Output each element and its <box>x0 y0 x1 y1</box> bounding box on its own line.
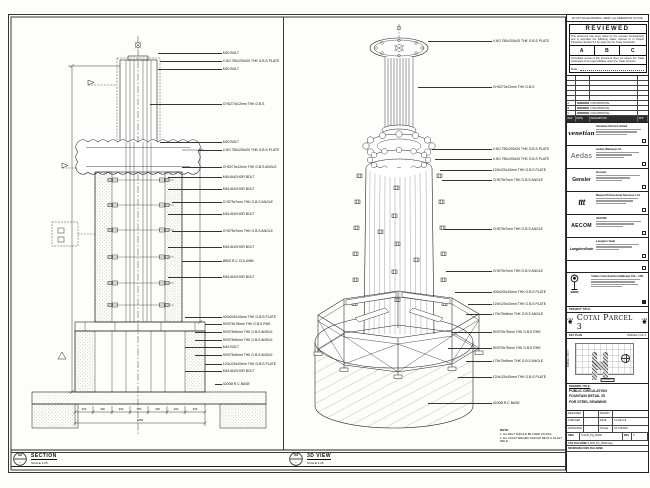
dim-value: 300 <box>119 408 124 411</box>
threed-bubble-ref: - <box>295 460 296 464</box>
company-checkbox <box>642 185 646 189</box>
stamp-status-options: A B C <box>570 45 646 56</box>
stamp-date-label: Date : <box>571 67 579 71</box>
company-checkbox <box>642 162 646 166</box>
drawing-title-label: DRAWING TITLE: <box>569 385 646 388</box>
contractor-block: Yudao Construction (Macau) CO., LTD. <box>567 273 648 307</box>
reference-row: REFERENCE DWG FILE NAME <box>567 446 648 452</box>
threed-bubble-number: 03 <box>294 453 298 457</box>
venetian-logo: venetian <box>568 131 594 137</box>
callout: CHS273x12mm THK G.B.S <box>418 86 534 89</box>
callout: SHS75x5mm THK G.B.S ANGLE <box>195 331 273 334</box>
banner-ornament-right-icon: ❦ <box>641 318 648 326</box>
company-name: Gensler <box>596 171 647 174</box>
key-plan-tag: PARCEL 3 <box>600 378 615 382</box>
key-plan-building-link <box>597 362 603 370</box>
company-name: Langdon Seah <box>596 240 647 243</box>
status-option-c: C <box>620 46 645 55</box>
key-plan: PARCEL 1 OF 3 PARCEL 3 <box>567 339 648 384</box>
drawing-number: S-SUB_PQ_00000 <box>580 433 623 440</box>
drawing-sheet: M20 BOLT 4 NO 750x200x20 THK G.B.S PLATE… <box>0 0 650 488</box>
section-view-title: SECTION <box>31 453 57 461</box>
dim-value: 450 <box>137 408 142 411</box>
callout: CHS75x7mm THK G.B.S ANGLE <box>446 270 543 273</box>
callout: 4 NO 750x200x20 THK G.B.S PLATE <box>435 158 549 161</box>
key-plan-side-label: PARCEL 1 OF 3 <box>568 350 570 367</box>
cad-file-name: S-SUB_PQ_00000.dwg <box>587 442 612 445</box>
company-row-empty <box>567 261 648 273</box>
note-line: 2. ALL FILLET WELDED SHOULD BE 6mm FILLE… <box>500 437 562 444</box>
callout: SHS75x75mm THK G.B.S RHS <box>205 323 270 326</box>
callout: 4 NO 750x200x20 THK G.B.S PLATE <box>198 149 279 152</box>
company-checkbox <box>642 266 646 270</box>
section-bubble-ref: - <box>19 460 20 464</box>
callout: 4 NO 750x200x20 THK G.B.S PLATE <box>428 40 549 43</box>
callout: M16 ANCHOR BOLT <box>185 370 254 373</box>
company-checkbox <box>642 254 646 258</box>
drawing-title-line: FOR STEEL DRAWING <box>569 400 646 405</box>
callout: M20 BOLT <box>158 52 239 55</box>
stamp-title: REVIEWED <box>570 25 646 34</box>
drawing-title-block: DRAWING TITLE: PUBLIC CIRCULATION FOUNTA… <box>567 384 648 411</box>
callout: 4 NO 750x200x20 THK G.B.S PLATE <box>432 148 549 151</box>
key-plan-grid <box>575 343 634 375</box>
drawing-number-row: DWG NO S-SUB_PQ_00000 REV C <box>567 433 648 441</box>
callout: M16 ANCHOR BOLT <box>168 276 254 279</box>
section-bubble-number: 02 <box>18 453 22 457</box>
company-checkbox <box>642 139 646 143</box>
section-linework <box>32 36 266 436</box>
aedas-logo: Aedas <box>571 153 592 160</box>
detail-bubbles <box>14 453 303 466</box>
company-name: Macau Professional Services Ltd. <box>596 194 647 197</box>
callout: CHS75x7mm THK G.B.S ANGLE <box>172 230 273 233</box>
aecom-logo: AECOM <box>571 223 592 229</box>
title-block: DO NOT SCALE DRAWING. VERIFY ALL DIMENSI… <box>566 14 649 473</box>
dim-value: 300 <box>193 408 198 411</box>
callout: SHS75x5mm THK G.B.S ANGLE <box>195 339 273 342</box>
callout: M20 BOLT <box>158 68 239 71</box>
notes-heading: NOTE: <box>500 428 509 432</box>
callout: 4200Ø R.C BASE <box>215 383 250 386</box>
revision-table: A FOR APPROVAL B FOR APPROVAL C FOR APPR… <box>567 76 648 123</box>
callout: M16 ANCHOR BOLT <box>168 176 254 179</box>
threed-view-scale: SCALE 1:25 <box>307 461 324 465</box>
stamp-date-row: Date : <box>570 64 646 72</box>
section-view-scale: SCALE 1:25 <box>31 461 48 465</box>
dim-value: 300 <box>155 408 160 411</box>
company-row-macau-professional: ttt Macau Professional Services Ltd. <box>567 192 648 215</box>
callout: L75x75x6mm THK G.B.S ANGLE <box>466 360 543 363</box>
company-row-langdon-seah: LangdonSeah Langdon Seah <box>567 238 648 261</box>
meta-row-checked: CHECKED- DATE14-JUN-19 <box>567 418 648 426</box>
callout: CHS75x7mm THK G.B.S ANGLE <box>442 179 543 182</box>
contractor-mark <box>642 300 646 304</box>
key-plan-label: KEY PLAN <box>567 334 627 337</box>
callout: M20 BOLT <box>160 141 239 144</box>
revision-value: C <box>632 433 648 440</box>
callout: SHS75x5mm THK G.B.S ANGLE <box>195 354 273 357</box>
contractor-logo-icon <box>567 273 582 295</box>
callout: 400x200x10mm THK G.B.S PLATE <box>185 316 276 319</box>
callout: 120x120x10mm THK G.B.S PLATE <box>468 303 546 306</box>
dim-value: 400 <box>174 408 179 411</box>
banner-ornament-left-icon: ❦ <box>567 318 574 326</box>
callout: 4 NO 750x200x20 THK G.B.S PLATE <box>160 60 279 63</box>
callout: SHS75x75mm THK G.B.S RHS <box>448 347 540 350</box>
company-row-aedas: Aedas Aedas (Macau) Ltd. <box>567 146 648 169</box>
callout: 120x120x10mm THK G.B.S PLATE <box>205 363 276 366</box>
note-line: 1. ALL BOLT SHOULD BE FIXED ON SITE. <box>500 433 552 436</box>
callout: M16 ANCHOR BOLT <box>168 213 254 216</box>
callout: SHS75x75mm THK G.B.S RHS <box>452 331 540 334</box>
status-option-a: A <box>570 46 595 55</box>
stamp-body: This document has been noted by the rele… <box>570 34 646 46</box>
contractor-name: Yudao Construction (Macau) CO., LTD. <box>591 275 647 278</box>
dim-total: 2450 <box>137 419 143 422</box>
callout: CHS273x12mm THK G.B.S <box>150 103 264 106</box>
key-plan-parcel-label: PARCEL 3 OF 3 <box>627 334 648 337</box>
company-name: AECOM <box>596 217 647 220</box>
callout: 120x120x10mm THK G.B.S PLATE <box>458 376 546 379</box>
cad-linework <box>0 0 650 488</box>
review-stamp: REVIEWED This document has been noted by… <box>567 22 648 76</box>
company-checkbox <box>642 208 646 212</box>
drawing-title-line: FOUNTAIN DETAIL 25 <box>569 394 646 399</box>
callout: L75x75x6mm THK G.B.S ANGLE <box>466 313 543 316</box>
ttt-logo: ttt <box>578 198 585 207</box>
meta-row-designed: DESIGNED- DRAWN- <box>567 411 648 419</box>
project-title: Cotai Parcel 3 <box>577 313 639 331</box>
status-option-b: B <box>595 46 620 55</box>
revision-header-row: REV DATE DESCRIPTION APP <box>567 116 648 122</box>
callout: CHS75x7mm THK G.B.S ANGLE <box>172 201 273 204</box>
meta-row-approved: APPROVED- SCALEAS SHOWN <box>567 426 648 434</box>
callout: M16 ANCHOR BOLT <box>168 188 254 191</box>
dim-value: 400 <box>100 408 105 411</box>
callout: M16 ANCHOR BOLT <box>168 246 254 249</box>
callout: M16 BOLT <box>185 346 239 349</box>
project-title-banner: ❦ Cotai Parcel 3 ❦ <box>567 313 648 333</box>
stamp-footer: Consultant review of this document does … <box>570 56 646 64</box>
threed-view-title: 3D VIEW <box>307 453 331 461</box>
callout: CHS273x12mm THK G.B.S ANGLE <box>182 166 277 169</box>
company-checkbox <box>642 231 646 235</box>
drawing-title-line: PUBLIC CIRCULATION <box>569 389 646 394</box>
company-row-aecom: AECOM AECOM <box>567 215 648 238</box>
company-name: Aedas (Macau) Ltd. <box>596 148 647 151</box>
general-notes: NOTE: 1. ALL BOLT SHOULD BE FIXED ON SIT… <box>500 429 562 444</box>
company-name: Venetian Orient Limited <box>596 125 647 128</box>
threed-linework <box>313 24 483 430</box>
callout: 4200Ø R.C BASE <box>428 402 520 405</box>
callout: 120x120x10mm THK G.B.S PLATE <box>440 169 546 172</box>
compass-icon <box>621 354 630 363</box>
langdon-seah-logo: LangdonSeah <box>570 247 594 251</box>
dim-value: 300 <box>82 408 87 411</box>
company-row-venetian: venetian Venetian Orient Limited <box>567 123 648 146</box>
company-row-gensler: Gensler Gensler <box>567 169 648 192</box>
gensler-logo: Gensler <box>572 177 591 183</box>
callout: 400x200x10mm THK G.B.S PLATE <box>455 291 546 294</box>
do-not-scale-note: DO NOT SCALE DRAWING. VERIFY ALL DIMENSI… <box>567 15 648 22</box>
callout: CHS75x7mm THK G.B.S ANGLE <box>444 228 543 231</box>
callout: Ø500 R.C COLUMN <box>182 260 254 263</box>
